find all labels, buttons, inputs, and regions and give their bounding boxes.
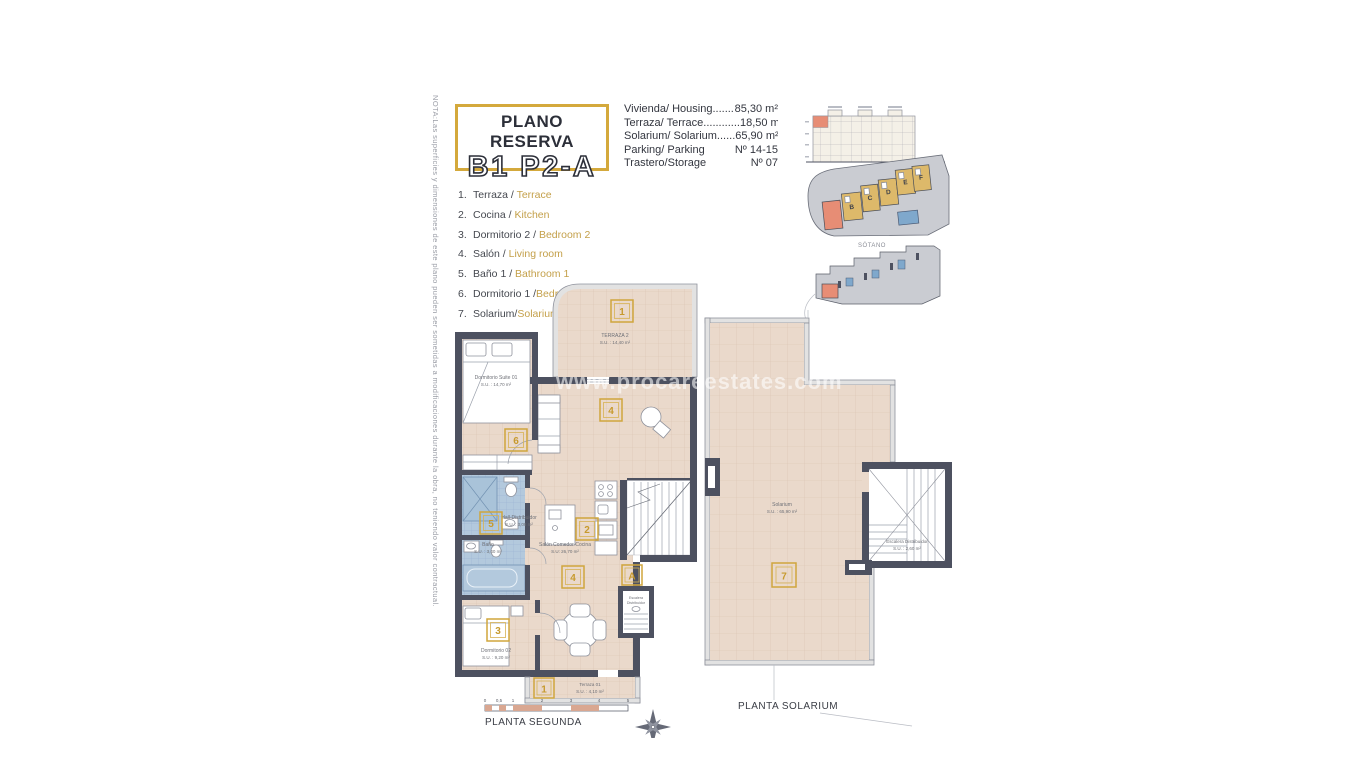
spec-row: Vivienda/ Housing.......85,30 m² (624, 103, 778, 117)
spec-row: Solarium/ Solarium......65,90 m² (624, 130, 778, 144)
legend-item-1: 1.Terraza / Terrace (458, 189, 648, 201)
spec-label: Solarium/ Solarium...... (624, 130, 735, 144)
room-number-1-terraza1: 1 (534, 678, 554, 698)
svg-text:S.U: 26,70 m²: S.U: 26,70 m² (551, 549, 579, 554)
svg-text:6: 6 (513, 436, 519, 447)
room-number-4-top: 4 (600, 399, 622, 421)
legend-item-2: 2.Cocina / Kitchen (458, 209, 648, 221)
svg-text:Distribuidor: Distribuidor (627, 601, 646, 605)
spec-row: Trastero/StorageNº 07 (624, 157, 778, 171)
toilet-ensuite (504, 477, 518, 497)
svg-text:1: 1 (512, 698, 515, 703)
site-pool (898, 210, 919, 225)
room-terraza-2 (553, 284, 697, 377)
caption-planta-solarium: PLANTA SOLARIUM (738, 701, 838, 712)
page-root: NOTA:Las superficies y dimensiones de es… (0, 0, 1366, 768)
spec-row: Terraza/ Terrace............18,50 m² (624, 117, 778, 131)
room-number-2: 2 (576, 518, 598, 540)
spec-label: Terraza/ Terrace............ (624, 117, 740, 131)
svg-text:Baño: Baño (482, 542, 494, 548)
solarium-name: Solarium (772, 502, 792, 508)
svg-text:3: 3 (495, 626, 501, 637)
minimap-siteplan: B C D E F (808, 155, 949, 236)
north-arrow-icon (635, 709, 671, 738)
svg-text:Escalera Distribuidor: Escalera Distribuidor (886, 539, 928, 544)
room-number-5: 5 (480, 512, 502, 534)
spec-value: Nº 14-15 (735, 144, 778, 158)
svg-text:Terraza 01: Terraza 01 (579, 682, 601, 687)
plan-segunda: Escalera Distribuidor TERRAZA 2 S.U. : 1… (450, 278, 705, 738)
stair-core: Escalera Distribuidor (623, 591, 649, 633)
svg-text:4: 4 (570, 573, 576, 584)
highlight-unit-cell (813, 116, 828, 128)
spec-value: Nº 07 (751, 157, 778, 171)
svg-text:Escalera: Escalera (629, 596, 643, 600)
svg-text:Dormitorio 02: Dormitorio 02 (481, 648, 511, 654)
room-number-6: 6 (505, 429, 527, 451)
svg-text:1: 1 (619, 307, 625, 318)
spec-label: Vivienda/ Housing....... (624, 103, 734, 117)
specs-list: Vivienda/ Housing.......85,30 m² Terraza… (624, 103, 778, 171)
title-box: PLANO RESERVA B1 P2-A (455, 104, 609, 171)
room-number-3: 3 (487, 619, 509, 641)
solarium-area: S.U. : 65,90 m² (767, 509, 798, 514)
sofa (538, 395, 560, 453)
sotano-highlight (822, 284, 838, 298)
site-block-f: F (919, 174, 924, 181)
svg-text:4: 4 (608, 406, 614, 417)
svg-text:Salón Comedor-Cocina: Salón Comedor-Cocina (539, 542, 591, 548)
plan-code: B1 P2-A (458, 152, 606, 182)
svg-text:S.U. : 3,40 m²: S.U. : 3,40 m² (474, 549, 502, 554)
spec-row: Parking/ ParkingNº 14-15 (624, 144, 778, 158)
svg-text:2: 2 (584, 525, 590, 536)
room-number-a: A (622, 565, 642, 585)
spec-value: 18,50 m² (740, 117, 778, 131)
svg-text:TERRAZA 2: TERRAZA 2 (601, 333, 628, 339)
plan-solarium: Escalera Distribuidor S.U. : 2,60 m² Sol… (702, 310, 970, 730)
stairs-common (627, 480, 690, 555)
svg-text:0: 0 (484, 698, 487, 703)
svg-text:S.U. : 14,70 m²: S.U. : 14,70 m² (481, 382, 512, 387)
svg-text:7: 7 (781, 572, 787, 583)
svg-text:0,5: 0,5 (496, 698, 503, 703)
svg-text:S.U. : 9,20 m²: S.U. : 9,20 m² (482, 655, 510, 660)
caption-planta-segunda: PLANTA SEGUNDA (485, 717, 582, 728)
svg-text:A: A (628, 572, 635, 583)
site-block-a-highlight (822, 200, 843, 230)
wardrobe (463, 455, 532, 470)
svg-text:5: 5 (488, 519, 494, 530)
svg-text:S.U. : 2,60 m²: S.U. : 2,60 m² (893, 546, 921, 551)
svg-text:1: 1 (541, 685, 547, 696)
svg-text:S.U. : 3,08 m²: S.U. : 3,08 m² (505, 522, 533, 527)
solarium-stairwell: Escalera Distribuidor S.U. : 2,60 m² (862, 462, 952, 568)
spec-value: 65,90 m² (735, 130, 778, 144)
svg-text:Dormitorio Suite 01: Dormitorio Suite 01 (475, 375, 518, 381)
spec-label: Trastero/Storage (624, 157, 706, 171)
room-number-1-terraza2: 1 (611, 300, 633, 322)
svg-text:S.U. : 4,10 m²: S.U. : 4,10 m² (576, 689, 604, 694)
room-number-4-dining: 4 (562, 566, 584, 588)
minimap-group: B C D E F SÓTANO (800, 98, 955, 324)
legend-item-4: 4.Salón / Living room (458, 248, 648, 260)
sotano-label: SÓTANO (858, 242, 886, 249)
kitchen-island (545, 505, 575, 545)
plan-title: PLANO RESERVA (458, 112, 606, 152)
bathtub (463, 565, 525, 591)
vertical-note: NOTA:Las superficies y dimensiones de es… (431, 95, 440, 695)
spec-label: Parking/ Parking (624, 144, 705, 158)
spec-value: 85,30 m² (735, 103, 778, 117)
svg-text:S.U. : 14,40 m²: S.U. : 14,40 m² (600, 340, 631, 345)
svg-text:Hall-Distribuidor: Hall-Distribuidor (501, 515, 537, 521)
legend-item-3: 3.Dormitorio 2 / Bedroom 2 (458, 229, 648, 241)
